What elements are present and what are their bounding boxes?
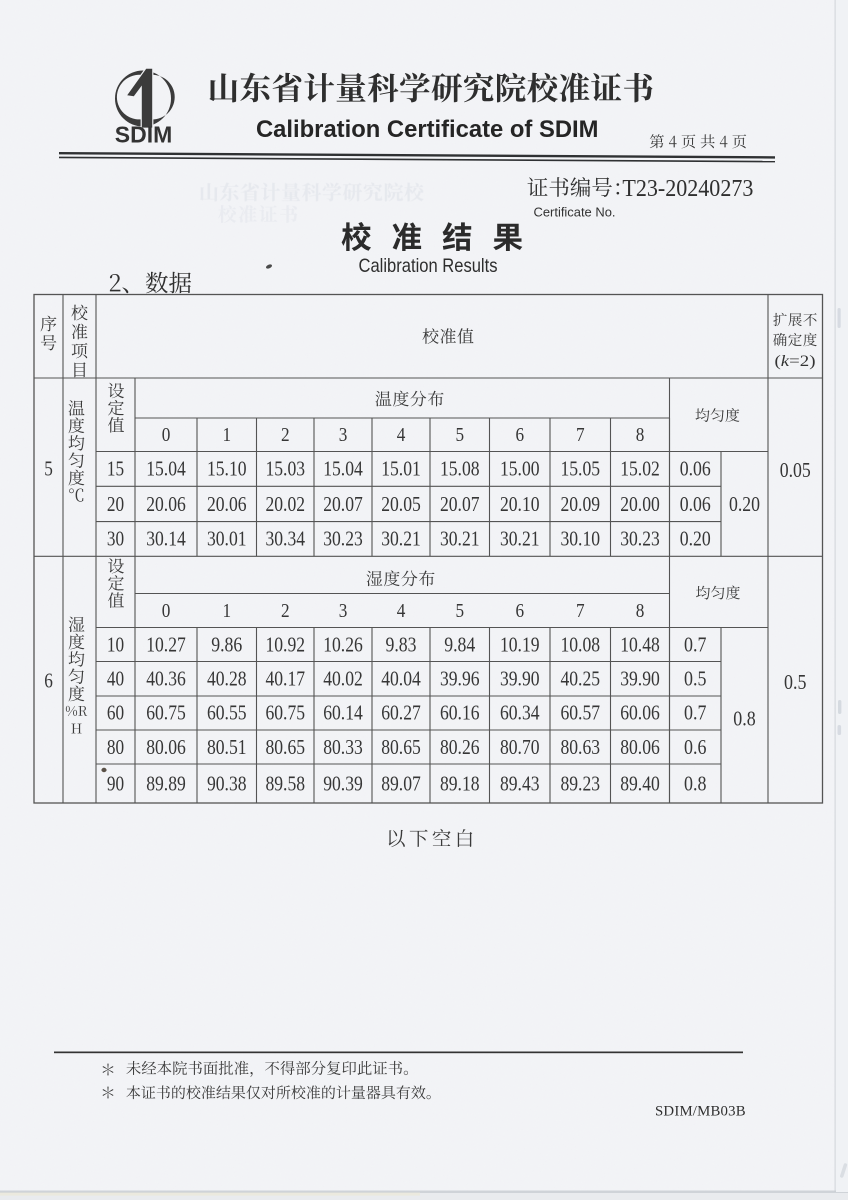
svg-text:80.65: 80.65 — [381, 735, 421, 759]
svg-text:30.01: 30.01 — [207, 527, 247, 551]
svg-text:40: 40 — [107, 667, 124, 691]
svg-text:6: 6 — [515, 424, 524, 446]
svg-text:60.75: 60.75 — [265, 701, 305, 725]
svg-text:80.33: 80.33 — [323, 735, 363, 759]
svg-text:80.06: 80.06 — [620, 735, 660, 759]
svg-text:6: 6 — [44, 668, 53, 692]
svg-text:6: 6 — [515, 600, 524, 622]
svg-text:15.08: 15.08 — [440, 457, 480, 481]
svg-text:40.25: 40.25 — [560, 667, 600, 691]
svg-text:80.70: 80.70 — [500, 735, 540, 759]
svg-text:89.23: 89.23 — [560, 771, 600, 795]
svg-text:Calibration Results: Calibration Results — [359, 255, 498, 277]
svg-text:8: 8 — [636, 424, 645, 446]
svg-text:15.01: 15.01 — [381, 457, 421, 481]
svg-text:0.5: 0.5 — [684, 667, 706, 691]
svg-text:0.06: 0.06 — [680, 457, 711, 481]
svg-text:15.00: 15.00 — [500, 457, 540, 481]
svg-text:30.21: 30.21 — [500, 527, 540, 551]
svg-text:30.23: 30.23 — [620, 527, 660, 551]
svg-text:15: 15 — [107, 457, 124, 481]
svg-text:(k=2): (k=2) — [775, 353, 816, 370]
svg-text:20.05: 20.05 — [381, 492, 421, 516]
svg-text:20.06: 20.06 — [146, 492, 186, 516]
svg-text:9.83: 9.83 — [386, 632, 417, 656]
svg-text:Certificate No.: Certificate No. — [534, 205, 616, 220]
svg-text:30.23: 30.23 — [323, 527, 363, 551]
svg-text:0.7: 0.7 — [684, 632, 706, 656]
svg-text:15.04: 15.04 — [146, 457, 186, 481]
svg-text:89.18: 89.18 — [440, 771, 480, 795]
svg-text:89.58: 89.58 — [265, 771, 305, 795]
svg-text:40.36: 40.36 — [146, 667, 186, 691]
svg-text:10.92: 10.92 — [265, 632, 305, 656]
svg-text:0.7: 0.7 — [684, 701, 706, 725]
svg-text:20.00: 20.00 — [620, 492, 660, 516]
svg-text:0.06: 0.06 — [680, 492, 711, 516]
svg-text:10.26: 10.26 — [323, 632, 363, 656]
svg-text:20.09: 20.09 — [560, 492, 600, 516]
svg-text:30.10: 30.10 — [560, 527, 600, 551]
svg-text:80.06: 80.06 — [146, 735, 186, 759]
svg-text:9.86: 9.86 — [211, 632, 242, 656]
svg-text:10.08: 10.08 — [560, 632, 600, 656]
svg-text:60.16: 60.16 — [440, 701, 480, 725]
svg-text:60.55: 60.55 — [207, 701, 247, 725]
svg-text:39.90: 39.90 — [500, 667, 540, 691]
svg-text:30.21: 30.21 — [381, 527, 421, 551]
svg-text:89.43: 89.43 — [500, 771, 540, 795]
svg-text:20.10: 20.10 — [500, 492, 540, 516]
svg-text:30.14: 30.14 — [146, 527, 186, 551]
svg-text:SDIM: SDIM — [115, 122, 173, 148]
svg-text:15.02: 15.02 — [620, 457, 660, 481]
svg-text:20.02: 20.02 — [265, 492, 305, 516]
svg-text:4: 4 — [397, 600, 406, 622]
svg-text:30.34: 30.34 — [265, 527, 305, 551]
svg-text:40.04: 40.04 — [381, 667, 421, 691]
svg-text:10: 10 — [107, 632, 124, 656]
svg-text:80.51: 80.51 — [207, 735, 247, 759]
svg-text:Calibration Certificate of SDI: Calibration Certificate of SDIM — [256, 116, 598, 143]
svg-text:60.75: 60.75 — [146, 701, 186, 725]
svg-text:T23-20240273: T23-20240273 — [622, 176, 753, 202]
svg-text:15.10: 15.10 — [207, 457, 247, 481]
svg-text:39.96: 39.96 — [440, 667, 480, 691]
svg-text:4: 4 — [397, 424, 406, 446]
svg-text:80: 80 — [107, 735, 124, 759]
svg-text:0.8: 0.8 — [733, 706, 755, 730]
svg-text:SDIM/MB03B: SDIM/MB03B — [655, 1104, 746, 1120]
svg-text:9.84: 9.84 — [444, 632, 475, 656]
svg-text:89.07: 89.07 — [381, 771, 421, 795]
svg-text:1: 1 — [222, 600, 231, 622]
svg-text:40.28: 40.28 — [207, 667, 247, 691]
svg-text:30: 30 — [107, 527, 124, 551]
svg-text:60: 60 — [107, 701, 124, 725]
svg-text:20: 20 — [107, 492, 124, 516]
svg-text:7: 7 — [576, 424, 585, 446]
svg-text:5: 5 — [455, 424, 464, 446]
svg-text:15.03: 15.03 — [265, 457, 305, 481]
svg-text:20.07: 20.07 — [323, 492, 363, 516]
svg-text:20.07: 20.07 — [440, 492, 480, 516]
svg-text:0.5: 0.5 — [784, 670, 806, 694]
svg-text:40.02: 40.02 — [323, 667, 363, 691]
svg-text:90.38: 90.38 — [207, 771, 247, 795]
svg-text:15.04: 15.04 — [323, 457, 363, 481]
svg-text:89.89: 89.89 — [146, 771, 186, 795]
svg-text:89.40: 89.40 — [620, 771, 660, 795]
svg-text:1: 1 — [222, 424, 231, 446]
svg-text:7: 7 — [576, 600, 585, 622]
svg-text:2: 2 — [281, 424, 290, 446]
svg-text:2: 2 — [281, 600, 290, 622]
svg-text:8: 8 — [636, 600, 645, 622]
svg-text:20.06: 20.06 — [207, 492, 247, 516]
svg-text:60.34: 60.34 — [500, 701, 540, 725]
svg-text:30.21: 30.21 — [440, 527, 480, 551]
svg-text:60.27: 60.27 — [381, 701, 421, 725]
svg-text:10.27: 10.27 — [146, 632, 186, 656]
svg-text:0.6: 0.6 — [684, 735, 706, 759]
svg-text:15.05: 15.05 — [560, 457, 600, 481]
svg-text:5: 5 — [455, 600, 464, 622]
svg-text:80.63: 80.63 — [560, 735, 600, 759]
svg-text:0.05: 0.05 — [780, 458, 811, 482]
svg-text:39.90: 39.90 — [620, 667, 660, 691]
svg-text:60.14: 60.14 — [323, 701, 363, 725]
svg-text:0.20: 0.20 — [729, 492, 760, 516]
svg-text:5: 5 — [44, 457, 53, 481]
svg-text:0.20: 0.20 — [680, 527, 711, 551]
svg-text:40.17: 40.17 — [265, 667, 305, 691]
svg-text:80.65: 80.65 — [265, 735, 305, 759]
svg-text:90: 90 — [107, 771, 124, 795]
svg-text:80.26: 80.26 — [440, 735, 480, 759]
svg-text:0: 0 — [162, 424, 171, 446]
svg-text:60.57: 60.57 — [560, 701, 600, 725]
svg-text:10.19: 10.19 — [500, 632, 540, 656]
svg-text:0.8: 0.8 — [684, 771, 706, 795]
svg-text:90.39: 90.39 — [323, 771, 363, 795]
svg-text:0: 0 — [162, 600, 171, 622]
svg-text:10.48: 10.48 — [620, 632, 660, 656]
svg-text:60.06: 60.06 — [620, 701, 660, 725]
svg-text:3: 3 — [339, 424, 348, 446]
svg-text:3: 3 — [339, 600, 348, 622]
